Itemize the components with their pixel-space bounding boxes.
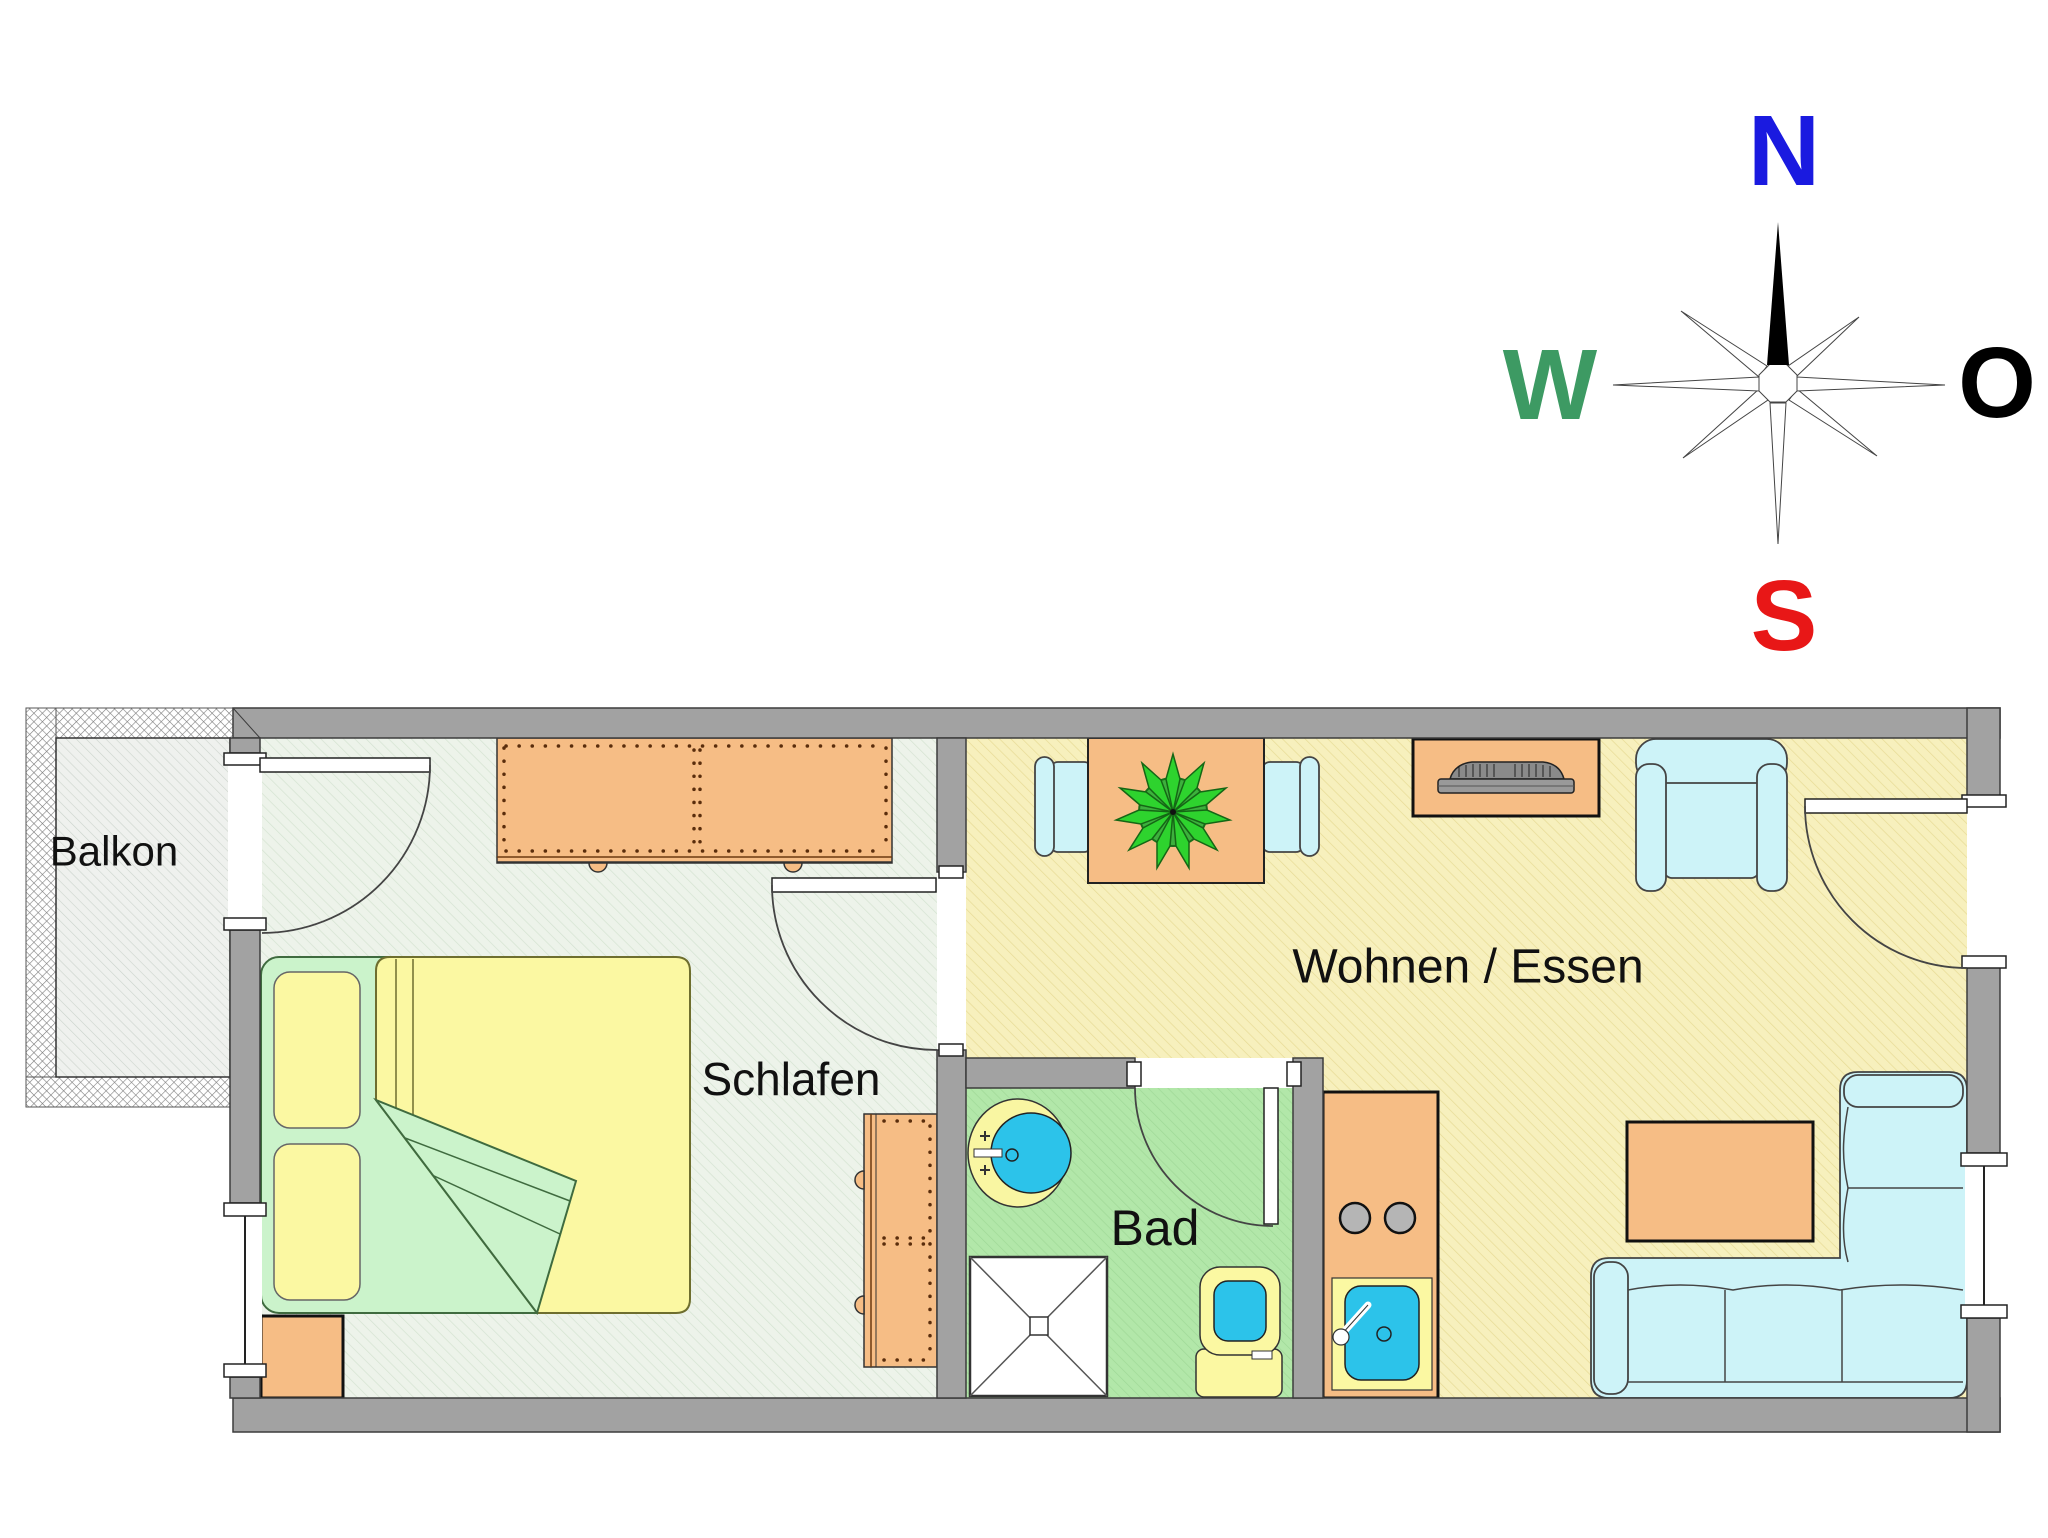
wall-east xyxy=(1967,1318,2000,1432)
compass-w: W xyxy=(1503,329,1598,441)
hotplate xyxy=(1385,1203,1415,1233)
door-leaf xyxy=(260,758,430,772)
wall-bedroom-bath xyxy=(937,1050,966,1398)
nightstand xyxy=(261,1316,343,1398)
balcony-railing-left xyxy=(26,708,56,1107)
living-dining-label: Wohnen / Essen xyxy=(1292,941,1643,994)
kitchenette xyxy=(1323,1092,1438,1398)
kitchen-sink xyxy=(1345,1286,1419,1380)
floor-plan-page: Balkon Schlafen Bad Wohnen / Essen N W O… xyxy=(0,0,2048,1538)
pillow xyxy=(274,1144,360,1300)
flush-button xyxy=(1252,1351,1272,1359)
door-leaf xyxy=(1264,1088,1278,1224)
door-leaf xyxy=(772,878,936,892)
compass-north-needle xyxy=(1767,222,1789,365)
wall-west xyxy=(230,1377,260,1398)
wall-bath-north xyxy=(966,1058,1135,1088)
balcony-railing-top xyxy=(26,708,233,738)
balcony-floor xyxy=(56,738,230,1077)
bedroom-cabinet xyxy=(855,1114,937,1367)
coffee-table xyxy=(1627,1122,1813,1241)
wall-west xyxy=(230,930,260,1203)
wall-bath-east xyxy=(1293,1058,1323,1398)
balcony xyxy=(26,708,233,1107)
compass-n: N xyxy=(1748,95,1820,207)
tv-sideboard xyxy=(1413,739,1599,816)
armchair-arm xyxy=(1636,764,1666,891)
sofa-armrest xyxy=(1594,1262,1628,1394)
toilet xyxy=(1196,1267,1282,1397)
bedroom-window xyxy=(224,1203,266,1377)
bedroom-label: Schlafen xyxy=(701,1053,880,1105)
dining-chair-seat xyxy=(1262,762,1304,852)
compass-rose: N W O S xyxy=(1503,95,2036,672)
wall-west xyxy=(230,738,260,753)
wall-east xyxy=(1967,708,2000,799)
balcony-label: Balkon xyxy=(50,828,178,875)
dining-chair-back xyxy=(1035,757,1054,856)
wall-north xyxy=(233,708,2000,738)
wall-east xyxy=(1967,962,2000,1153)
dining-chair-back xyxy=(1300,757,1319,856)
armchair-arm xyxy=(1757,764,1787,891)
dining-chair-seat xyxy=(1050,762,1092,852)
armchair-seat xyxy=(1664,772,1759,878)
compass-s: S xyxy=(1751,560,1818,672)
faucet xyxy=(974,1149,1002,1157)
armchair xyxy=(1636,739,1787,891)
double-bed xyxy=(261,957,690,1313)
shower xyxy=(970,1257,1107,1396)
tv xyxy=(1438,762,1574,793)
hotplate xyxy=(1340,1203,1370,1233)
sofa-armrest xyxy=(1844,1075,1963,1107)
door-leaf xyxy=(1805,799,1967,813)
bathroom-label: Bad xyxy=(1111,1200,1200,1256)
wall-bedroom-living xyxy=(937,738,966,872)
compass-o: O xyxy=(1958,327,2036,439)
toilet-seat xyxy=(1214,1281,1266,1341)
wall-south xyxy=(233,1398,2000,1432)
floor-plan-drawing: Balkon Schlafen Bad Wohnen / Essen N W O… xyxy=(0,0,2048,1538)
wardrobe xyxy=(497,738,892,872)
pillow xyxy=(274,972,360,1128)
balcony-railing-bottom xyxy=(26,1077,233,1107)
shower-drain xyxy=(1030,1317,1048,1335)
living-window xyxy=(1961,1153,2007,1318)
